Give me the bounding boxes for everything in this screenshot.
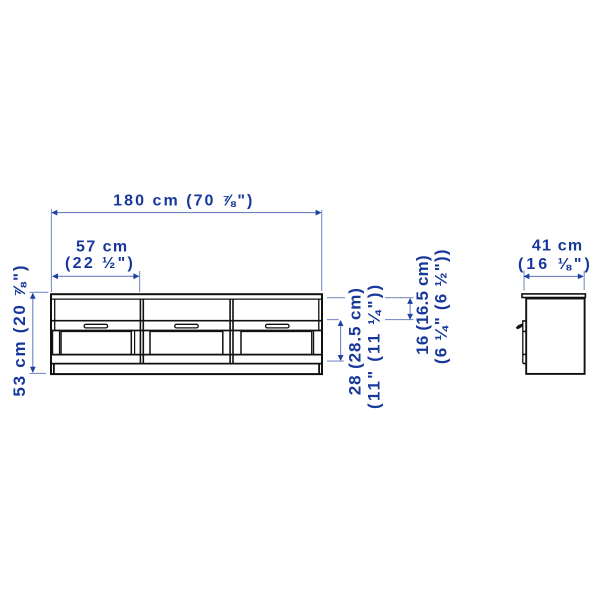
- svg-text:53 cm (20 ⅞"): 53 cm (20 ⅞"): [10, 264, 29, 397]
- svg-text:41 cm: 41 cm: [532, 238, 583, 255]
- svg-text:(16 ⅛"): (16 ⅛"): [518, 256, 593, 273]
- svg-text:28 (28.5 cm): 28 (28.5 cm): [345, 287, 364, 395]
- svg-text:(22 ½"): (22 ½"): [65, 255, 135, 272]
- svg-text:(11" (11 ¼")): (11" (11 ¼")): [365, 283, 384, 409]
- svg-text:180 cm (70 ⅞"): 180 cm (70 ⅞"): [113, 193, 254, 210]
- svg-text:16 (16.5 cm): 16 (16.5 cm): [413, 255, 432, 355]
- svg-text:(6 ¼" (6 ½")): (6 ¼" (6 ½")): [431, 248, 450, 364]
- svg-text:57 cm: 57 cm: [76, 239, 129, 256]
